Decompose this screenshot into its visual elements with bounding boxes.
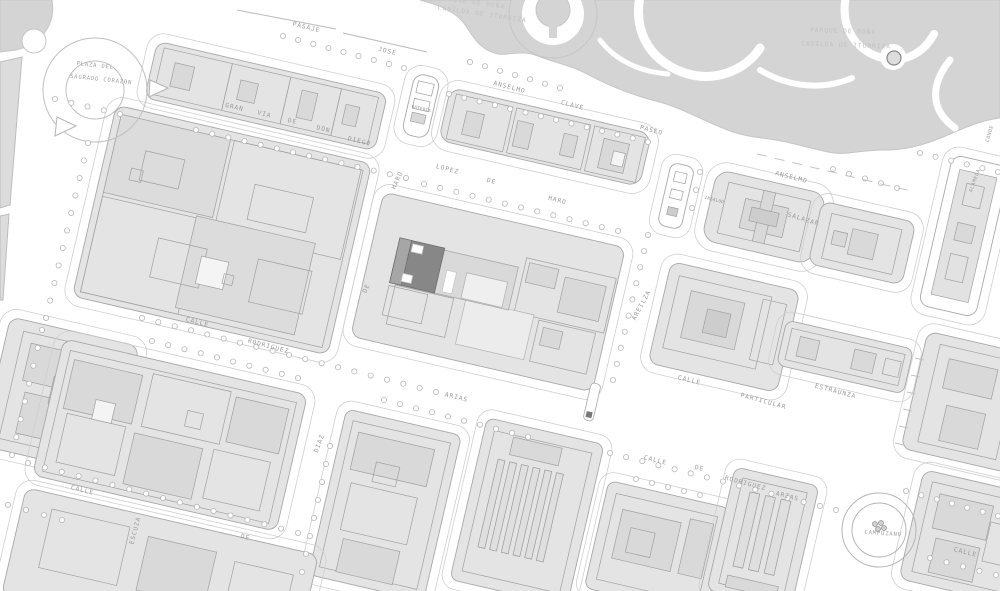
tree-icon <box>403 175 408 180</box>
street-label-calle: CALLE <box>643 454 668 467</box>
tree-icon <box>567 217 572 222</box>
tree-icon <box>634 281 639 286</box>
tree-icon <box>470 193 475 198</box>
tree-icon <box>401 381 406 386</box>
tree-icon <box>73 193 78 198</box>
tree-icon <box>446 91 451 96</box>
tree-icon <box>172 324 177 329</box>
tree-icon <box>110 482 115 487</box>
tree-icon <box>688 471 693 476</box>
monument-icon <box>873 522 878 527</box>
tree-icon <box>69 100 74 105</box>
tree-icon <box>307 533 312 538</box>
tree-icon <box>830 166 835 171</box>
tree-icon <box>242 139 247 144</box>
building <box>195 256 229 290</box>
tree-icon <box>327 443 332 448</box>
tree-icon <box>624 455 629 460</box>
tree-icon <box>615 228 620 233</box>
tree-icon <box>649 480 654 485</box>
tree-icon <box>341 49 346 54</box>
tree-icon <box>817 503 822 508</box>
tree-icon <box>23 507 28 512</box>
tree-icon <box>182 347 187 352</box>
tree-icon <box>462 95 467 100</box>
tree-icon <box>672 467 677 472</box>
tree-icon <box>508 106 513 111</box>
tree-icon <box>205 332 210 337</box>
building <box>611 151 626 167</box>
tree-icon <box>618 345 623 350</box>
tree-icon <box>52 96 57 101</box>
building <box>667 207 679 217</box>
tree-icon <box>607 450 612 455</box>
tree-icon <box>280 33 285 38</box>
tree-icon <box>311 41 316 46</box>
tree-icon <box>949 158 954 163</box>
tree-icon <box>81 158 86 163</box>
tree-icon <box>381 397 386 402</box>
tree-icon <box>429 410 434 415</box>
block-southeast <box>888 459 1000 591</box>
tree-icon <box>42 465 47 470</box>
tree-icon <box>467 59 472 64</box>
street-label-anselmo: ANSELMO <box>493 80 527 95</box>
tree-icon <box>697 169 702 174</box>
tree-icon <box>214 355 219 360</box>
tree-icon <box>5 502 10 507</box>
tree-icon <box>477 422 482 427</box>
tree-icon <box>486 197 491 202</box>
tree-icon <box>274 146 279 151</box>
tree-icon <box>542 81 547 86</box>
tree-icon <box>387 172 392 177</box>
tree-icon <box>315 497 320 502</box>
tree-icon <box>198 351 203 356</box>
tree-icon <box>27 381 32 386</box>
tree-icon <box>299 569 304 574</box>
city-plan-map[interactable]: PLAZA DELSAGRADO CORAZONPASAJEJOSEANSELM… <box>0 0 1000 591</box>
tree-icon <box>401 65 406 70</box>
tree-icon <box>554 117 559 122</box>
tree-icon <box>18 417 23 422</box>
tree-icon <box>326 45 331 50</box>
tree-icon <box>622 329 627 334</box>
street-label-estraunza: ESTRAUNZA <box>814 383 857 401</box>
tree-icon <box>295 375 300 380</box>
tree-icon <box>290 150 295 155</box>
tree-icon <box>323 157 328 162</box>
tree-icon <box>454 189 459 194</box>
tree-icon <box>512 72 517 77</box>
tree-icon <box>231 359 236 364</box>
street-label-sagrado-corazon: SAGRADO CORAZON <box>70 74 133 87</box>
tree-icon <box>335 365 340 370</box>
tree-icon <box>41 512 46 517</box>
tree-icon <box>944 560 949 565</box>
parking-mark <box>757 154 767 156</box>
tree-icon <box>279 371 284 376</box>
tree-icon <box>492 103 497 108</box>
tree-icon <box>14 435 19 440</box>
tree-icon <box>615 132 620 137</box>
tree-icon <box>177 500 182 505</box>
building <box>847 229 878 260</box>
tree-icon <box>633 476 638 481</box>
tree-icon <box>493 426 498 431</box>
tree-icon <box>258 142 263 147</box>
tree-icon <box>518 205 523 210</box>
building <box>92 399 116 423</box>
tree-icon <box>48 298 53 303</box>
tree-icon <box>642 249 647 254</box>
tree-icon <box>59 517 64 522</box>
tree-icon <box>934 497 939 502</box>
tree-icon <box>156 320 161 325</box>
tree-icon <box>228 513 233 518</box>
tree-icon <box>693 187 698 192</box>
tree-icon <box>149 338 154 343</box>
block-areilza-east <box>637 251 811 404</box>
tree-icon <box>527 77 532 82</box>
tree-icon <box>211 509 216 514</box>
tree-icon <box>421 181 426 186</box>
tree-icon <box>76 474 81 479</box>
street-label-calle: CALLE <box>677 374 702 387</box>
tree-icon <box>445 414 450 419</box>
tree-icon <box>22 399 27 404</box>
tree-icon <box>502 201 507 206</box>
street-label-plaza-del: PLAZA DEL <box>76 61 114 71</box>
tree-icon <box>917 150 922 155</box>
tree-icon <box>977 568 982 573</box>
tree-icon <box>949 501 954 506</box>
tree-icon <box>160 495 165 500</box>
street-label-conde: CONDE <box>985 125 996 143</box>
tree-icon <box>194 504 199 509</box>
tree-icon <box>417 385 422 390</box>
building <box>702 309 731 338</box>
tree-icon <box>697 492 702 497</box>
tree-icon <box>600 128 605 133</box>
tree-icon <box>371 168 376 173</box>
tree-icon <box>237 340 242 345</box>
tree-icon <box>101 108 106 113</box>
tree-icon <box>245 517 250 522</box>
tree-icon <box>226 135 231 140</box>
tree-icon <box>144 491 149 496</box>
tree-icon <box>557 85 562 90</box>
tree-icon <box>614 361 619 366</box>
tree-icon <box>769 491 774 496</box>
tree-icon <box>610 377 615 382</box>
tree-icon <box>535 209 540 214</box>
tree-icon <box>323 461 328 466</box>
tree-icon <box>993 572 998 577</box>
tree-icon <box>919 493 924 498</box>
tree-icon <box>509 430 514 435</box>
building <box>796 336 820 360</box>
tree-icon <box>704 475 709 480</box>
tree-icon <box>689 205 694 210</box>
parking-mark <box>792 163 802 165</box>
tree-icon <box>319 361 324 366</box>
tree-icon <box>193 127 198 132</box>
tree-icon <box>85 104 90 109</box>
tree-icon <box>139 315 144 320</box>
street-label-de: DE <box>486 177 497 186</box>
tree-icon <box>995 169 1000 174</box>
tree-icon <box>368 373 373 378</box>
tree-icon <box>85 140 90 145</box>
tree-icon <box>903 488 908 493</box>
median-strip-2 <box>646 151 705 240</box>
tree-icon <box>413 406 418 411</box>
tree-icon <box>433 389 438 394</box>
tree-icon <box>497 68 502 73</box>
street-label-diaz: DIAZ <box>313 433 326 453</box>
tree-icon <box>538 114 543 119</box>
tree-icon <box>319 479 324 484</box>
tree-icon <box>933 154 938 159</box>
map-canvas[interactable]: PLAZA DELSAGRADO CORAZONPASAJEJOSEANSELM… <box>0 0 1000 591</box>
tree-icon <box>980 509 985 514</box>
street-label-lopez: LOPEZ <box>435 163 460 176</box>
tree-icon <box>64 228 69 233</box>
tree-icon <box>525 434 530 439</box>
street-label-pasaje: PASAJE <box>292 21 321 35</box>
tree-icon <box>279 526 284 531</box>
tree-icon <box>645 139 650 144</box>
block-alameda <box>908 144 1000 329</box>
tree-icon <box>482 64 487 69</box>
tree-icon <box>39 327 44 332</box>
block-south-a <box>298 398 473 591</box>
tree-icon <box>569 121 574 126</box>
tree-icon <box>523 110 528 115</box>
monument-icon <box>882 526 887 531</box>
tree-icon <box>665 484 670 489</box>
tree-icon <box>303 357 308 362</box>
tree-icon <box>210 131 215 136</box>
tree-icon <box>127 487 132 492</box>
tree-icon <box>630 136 635 141</box>
tree-icon <box>833 507 838 512</box>
tree-icon <box>583 221 588 226</box>
tree-icon <box>584 125 589 130</box>
tree-icon <box>296 37 301 42</box>
tree-icon <box>221 336 226 341</box>
tree-icon <box>247 363 252 368</box>
tree-icon <box>438 185 443 190</box>
tree-icon <box>384 377 389 382</box>
tree-icon <box>43 315 48 320</box>
tree-icon <box>477 99 482 104</box>
tree-icon <box>371 57 376 62</box>
tree-icon <box>995 513 1000 518</box>
tree-icon <box>681 488 686 493</box>
highlighted-building-part[interactable] <box>401 273 413 283</box>
tree-icon <box>339 161 344 166</box>
tree-icon <box>307 153 312 158</box>
tree-icon <box>295 530 300 535</box>
block-anselmo <box>428 77 662 198</box>
tree-icon <box>960 564 965 569</box>
street-label-particular: PARTICULAR <box>740 392 787 411</box>
tree-icon <box>356 53 361 58</box>
street-label-arias: ARIAS <box>444 391 469 404</box>
monument-icon <box>879 521 884 526</box>
parking-mark <box>810 167 820 169</box>
tree-icon <box>461 418 466 423</box>
tree-icon <box>166 343 171 348</box>
tree-icon <box>69 210 74 215</box>
street-label-jose: JOSE <box>377 46 397 57</box>
tree-icon <box>60 245 65 250</box>
tree-icon <box>31 363 36 368</box>
parking-mark <box>895 443 904 445</box>
tree-icon <box>927 555 932 560</box>
tree-icon <box>878 181 883 186</box>
building <box>954 222 976 244</box>
tree-icon <box>311 515 316 520</box>
tree-icon <box>645 232 650 237</box>
tree-icon <box>77 175 82 180</box>
block-center-highlight <box>340 181 637 403</box>
street-label-anselmo: ANSELMO <box>774 170 808 185</box>
tree-icon <box>263 367 268 372</box>
tree-icon <box>551 213 556 218</box>
tree-icon <box>188 328 193 333</box>
tree-icon <box>355 164 360 169</box>
tree-icon <box>117 111 122 116</box>
tree-icon <box>9 452 14 457</box>
block-east-mid <box>890 320 1000 483</box>
tree-icon <box>386 61 391 66</box>
tree-icon <box>965 505 970 510</box>
tree-icon <box>93 478 98 483</box>
tree-icon <box>801 499 806 504</box>
street-label-de: DE <box>694 464 705 473</box>
tree-icon <box>397 402 402 407</box>
parking-mark <box>775 158 785 160</box>
tree-icon <box>35 345 40 350</box>
tree-icon <box>25 460 30 465</box>
tree-icon <box>59 469 64 474</box>
building <box>831 230 848 247</box>
tree-icon <box>56 263 61 268</box>
street-label-clave: CLAVE <box>560 99 585 112</box>
fence-line <box>237 10 336 29</box>
tree-icon <box>52 280 57 285</box>
tree-icon <box>303 551 308 556</box>
tree-icon <box>262 522 267 527</box>
tree-icon <box>352 369 357 374</box>
street-label-haro: HARO <box>547 195 567 207</box>
tree-icon <box>599 225 604 230</box>
tree-icon <box>964 162 969 167</box>
tree-icon <box>630 297 635 302</box>
tree-icon <box>638 265 643 270</box>
street-label-campuzano: CAMPUZANO <box>864 530 902 539</box>
